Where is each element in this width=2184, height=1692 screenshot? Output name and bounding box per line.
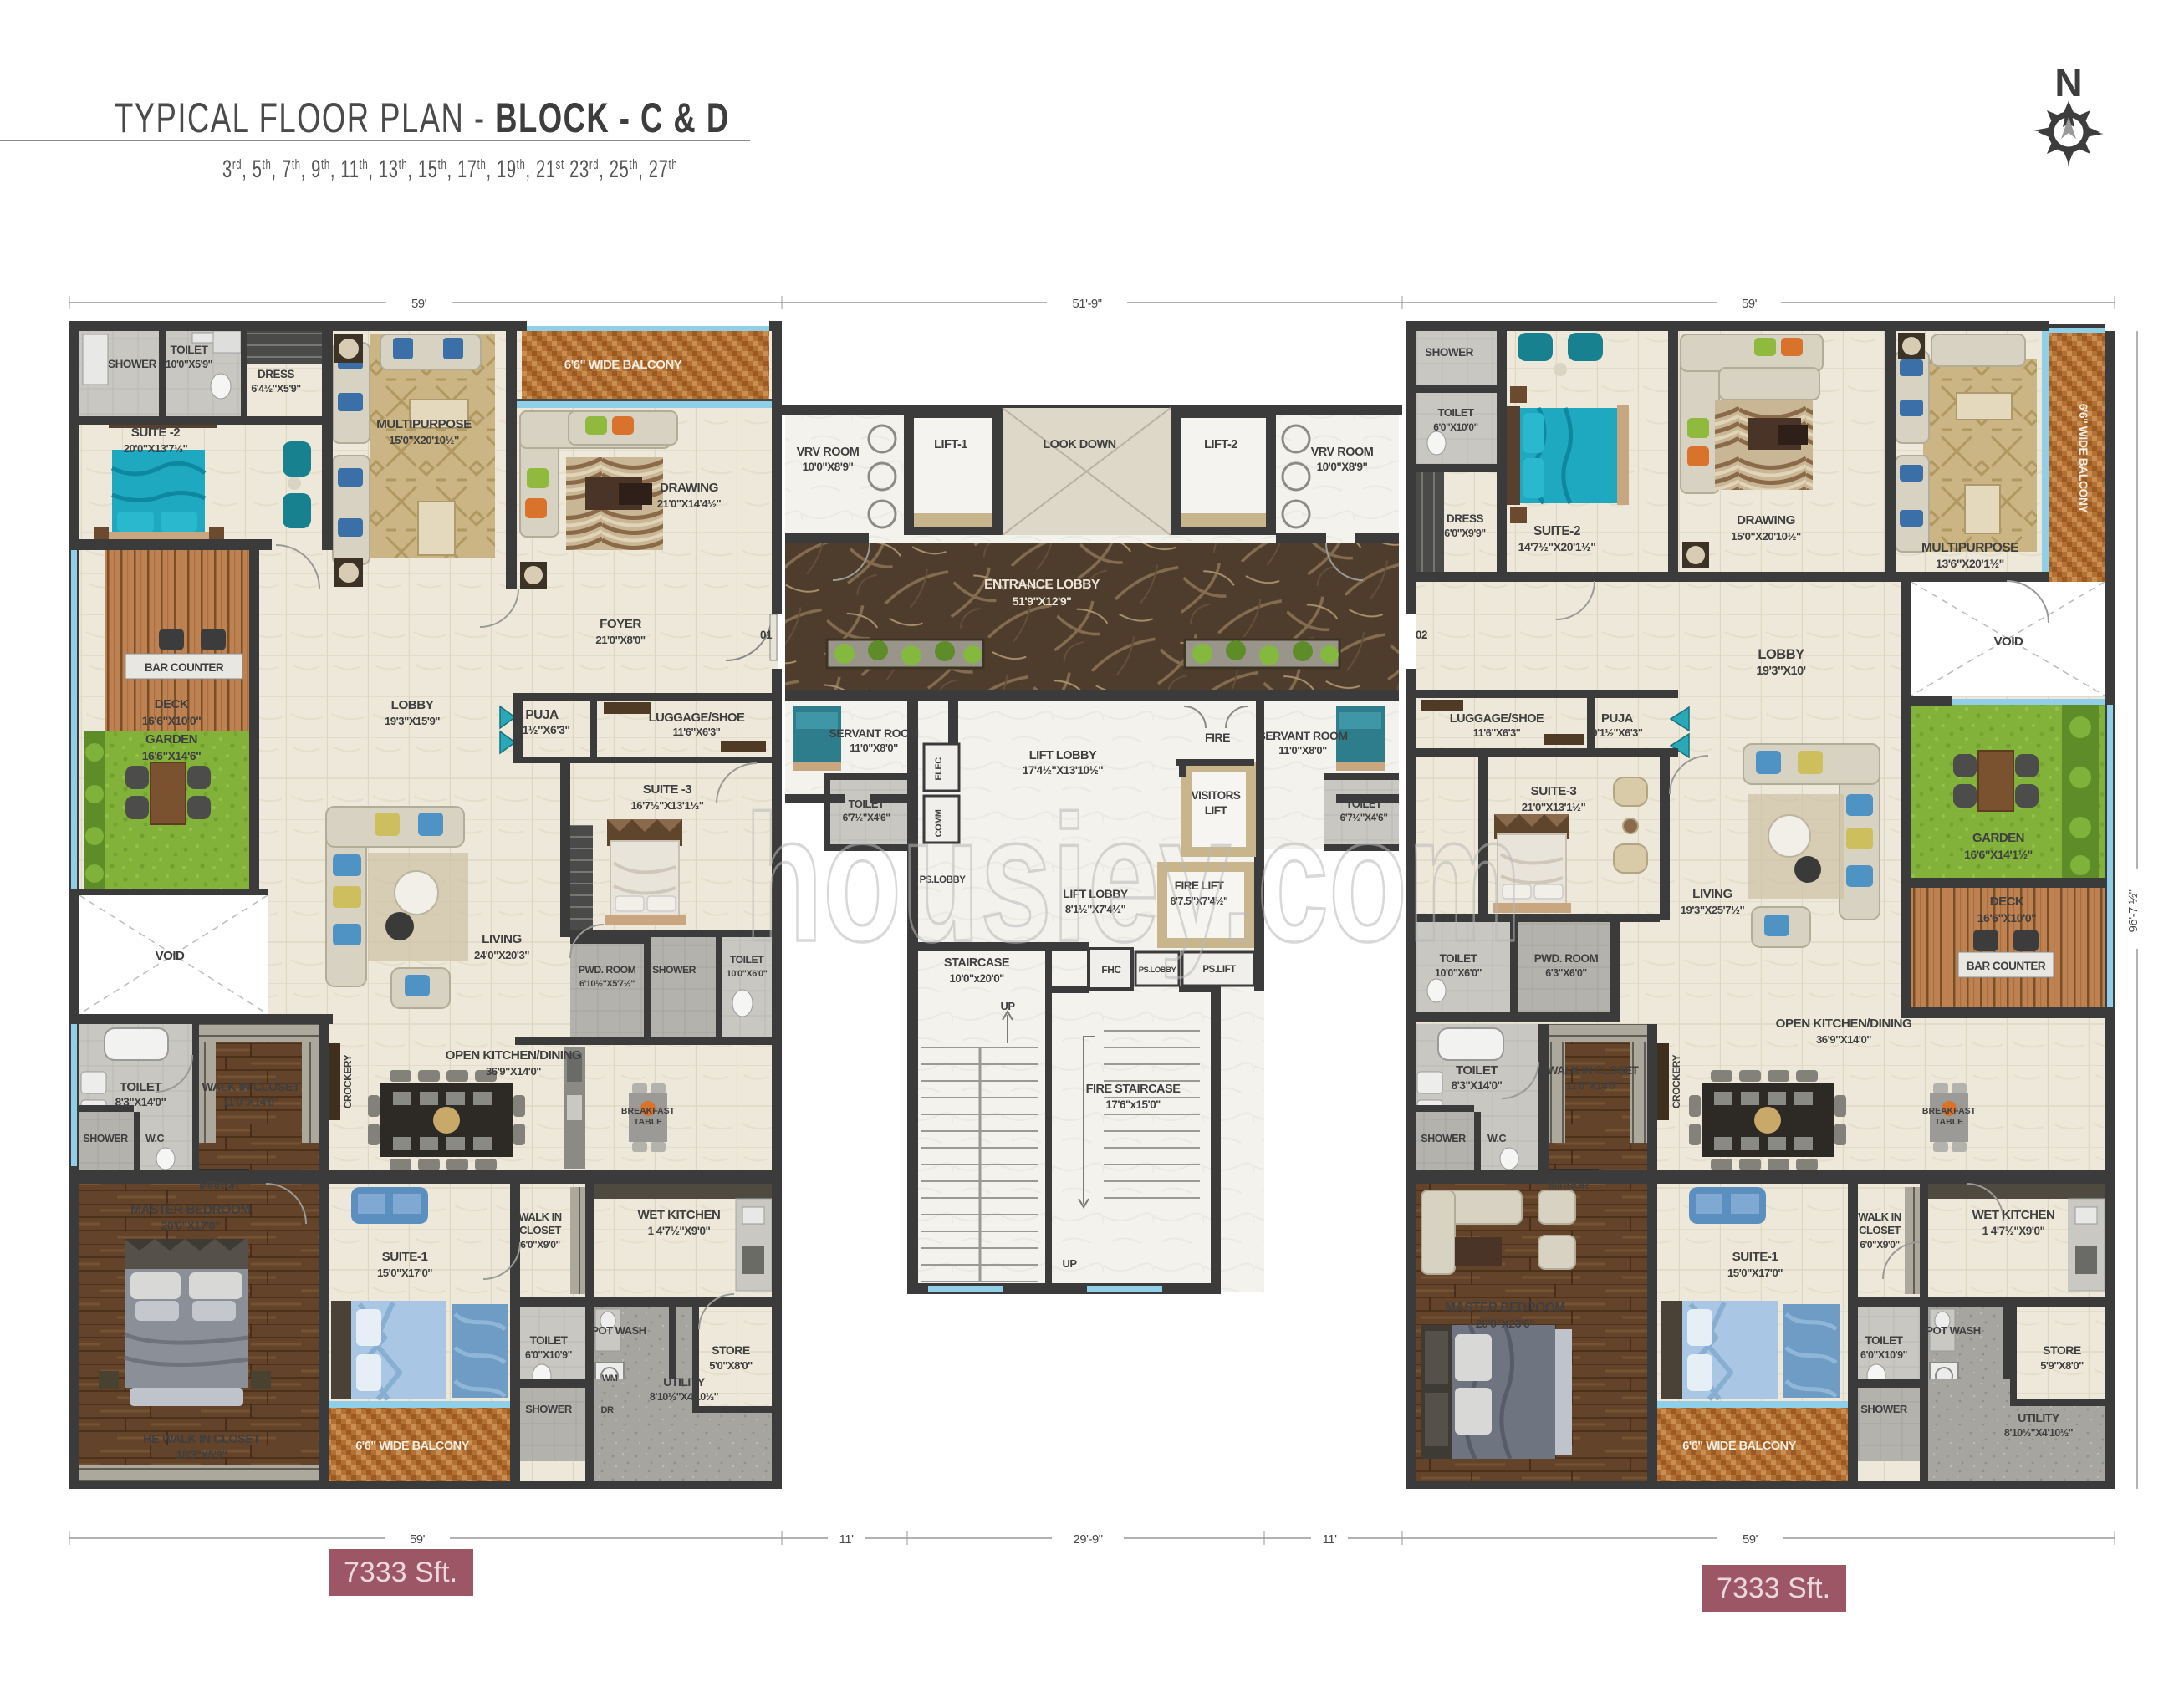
svg-text:6'0"X10'9": 6'0"X10'9" <box>1860 1349 1907 1361</box>
svg-text:11'6"X6'3": 11'6"X6'3" <box>1473 726 1521 739</box>
svg-text:13'6"X20'1½": 13'6"X20'1½" <box>1936 557 2004 570</box>
svg-text:CROCKERY: CROCKERY <box>1671 1054 1682 1108</box>
svg-text:TABLE: TABLE <box>1935 1117 1963 1127</box>
svg-text:TOILET: TOILET <box>1865 1334 1904 1347</box>
svg-text:BREAKFAST: BREAKFAST <box>1922 1106 1977 1116</box>
svg-text:15'0"X20'10½": 15'0"X20'10½" <box>389 434 459 446</box>
svg-text:02: 02 <box>1416 629 1427 641</box>
svg-text:W.C: W.C <box>1487 1133 1507 1144</box>
svg-text:SUITE-2: SUITE-2 <box>1533 524 1580 538</box>
svg-text:CLOSET: CLOSET <box>519 1224 561 1236</box>
svg-text:6'6" WIDE BALCONY: 6'6" WIDE BALCONY <box>1682 1440 1796 1453</box>
svg-text:LOBBY: LOBBY <box>1758 647 1804 662</box>
svg-text:LIFT LOBBY: LIFT LOBBY <box>1029 749 1097 762</box>
svg-text:DRESS: DRESS <box>258 368 295 380</box>
svg-text:ENTRANCE LOBBY: ENTRANCE LOBBY <box>984 578 1100 592</box>
svg-text:21'0"X13'1½": 21'0"X13'1½" <box>1522 801 1586 813</box>
svg-text:8'3"X14'0": 8'3"X14'0" <box>115 1096 166 1108</box>
svg-text:11'0"X8'0": 11'0"X8'0" <box>850 742 898 754</box>
svg-text:SHOWER: SHOWER <box>1421 1133 1466 1144</box>
svg-text:UP: UP <box>1062 1257 1077 1270</box>
svg-text:LUGGAGE/SHOE: LUGGAGE/SHOE <box>649 711 745 725</box>
svg-text:11'0"X8'0": 11'0"X8'0" <box>1278 744 1327 757</box>
svg-text:WALK IN: WALK IN <box>518 1210 561 1223</box>
svg-text:11': 11' <box>839 1532 855 1547</box>
svg-text:9'1½"X6'3": 9'1½"X6'3" <box>513 723 569 736</box>
svg-text:59': 59' <box>1742 297 1758 311</box>
svg-text:DECK: DECK <box>1990 894 2024 909</box>
svg-text:OPEN KITCHEN/DINING: OPEN KITCHEN/DINING <box>1776 1017 1912 1031</box>
svg-text:WET KITCHEN: WET KITCHEN <box>638 1208 721 1222</box>
svg-text:LUGGAGE/SHOE: LUGGAGE/SHOE <box>1450 712 1544 726</box>
svg-text:11'0"X14'0": 11'0"X14'0" <box>1566 1079 1620 1092</box>
svg-text:59': 59' <box>411 297 427 311</box>
svg-text:6'3"X6'0": 6'3"X6'0" <box>1545 967 1587 979</box>
svg-text:MIRROR: MIRROR <box>1549 1180 1589 1191</box>
svg-text:51'-9": 51'-9" <box>1072 297 1101 311</box>
svg-text:DRAWING: DRAWING <box>1737 513 1795 527</box>
svg-text:20'0"X13'7½": 20'0"X13'7½" <box>124 442 188 455</box>
svg-text:6'0"X10'9": 6'0"X10'9" <box>525 1349 572 1361</box>
svg-text:BREAKFAST: BREAKFAST <box>621 1106 676 1116</box>
svg-text:WM: WM <box>602 1373 618 1384</box>
svg-text:MULTIPURPOSE: MULTIPURPOSE <box>1921 541 2018 555</box>
svg-text:PUJA: PUJA <box>1601 711 1634 726</box>
svg-text:LOBBY: LOBBY <box>391 698 434 712</box>
svg-text:STORE: STORE <box>712 1343 750 1357</box>
svg-text:GARDEN: GARDEN <box>1972 831 2024 845</box>
svg-text:18'3"X5'9": 18'3"X5'9" <box>176 1449 227 1461</box>
svg-text:CLOSET: CLOSET <box>1859 1224 1901 1236</box>
svg-text:SHOWER: SHOWER <box>1425 346 1474 359</box>
svg-text:TOILET: TOILET <box>120 1080 161 1094</box>
svg-text:5'0"X8'0": 5'0"X8'0" <box>709 1359 753 1372</box>
svg-text:LIVING: LIVING <box>1692 887 1732 901</box>
svg-text:LOOK DOWN: LOOK DOWN <box>1043 438 1115 451</box>
svg-text:FIRE STAIRCASE: FIRE STAIRCASE <box>1086 1083 1181 1096</box>
svg-text:WET KITCHEN: WET KITCHEN <box>1972 1208 2055 1222</box>
svg-text:POT WASH: POT WASH <box>1926 1324 1980 1337</box>
svg-text:TOILET: TOILET <box>1438 406 1475 419</box>
svg-text:15'0"X17'0": 15'0"X17'0" <box>377 1266 432 1279</box>
svg-text:TOILET: TOILET <box>1456 1063 1498 1078</box>
svg-text:DRAWING: DRAWING <box>660 481 718 495</box>
svg-text:PWD. ROOM: PWD. ROOM <box>1534 952 1599 965</box>
svg-text:6'0"X9'0": 6'0"X9'0" <box>520 1239 559 1251</box>
svg-text:SUITE -2: SUITE -2 <box>131 426 181 440</box>
svg-text:GARDEN: GARDEN <box>145 732 197 747</box>
svg-text:5'9"X8'0": 5'9"X8'0" <box>2040 1359 2084 1372</box>
svg-text:TYPICAL FLOOR PLAN - BLOCK - C: TYPICAL FLOOR PLAN - BLOCK - C & D <box>115 94 730 141</box>
svg-text:6'6" WIDE BALCONY: 6'6" WIDE BALCONY <box>2077 404 2090 514</box>
svg-text:16'6"X10'0": 16'6"X10'0" <box>142 714 202 727</box>
svg-text:15'0"X20'10½": 15'0"X20'10½" <box>1731 530 1801 543</box>
svg-text:housiey.com: housiey.com <box>744 777 1522 979</box>
svg-text:10'0"X8'9": 10'0"X8'9" <box>803 461 854 473</box>
svg-text:8'10½"X4'10½": 8'10½"X4'10½" <box>2004 1427 2074 1439</box>
svg-text:59': 59' <box>410 1532 426 1547</box>
svg-text:N: N <box>2054 61 2082 104</box>
svg-text:20'0"X17'0": 20'0"X17'0" <box>161 1219 221 1232</box>
svg-text:SHOWER: SHOWER <box>652 964 697 976</box>
svg-text:14'7½"X20'1½": 14'7½"X20'1½" <box>1518 540 1596 553</box>
svg-text:6'4½"X5'9": 6'4½"X5'9" <box>251 383 301 395</box>
svg-text:SHOWER: SHOWER <box>83 1133 128 1144</box>
svg-text:FIRE: FIRE <box>1205 731 1230 744</box>
svg-text:WALK IN CLOSET: WALK IN CLOSET <box>1548 1064 1640 1077</box>
svg-text:16'6"X10'0": 16'6"X10'0" <box>1977 911 2037 925</box>
svg-text:6'6" WIDE BALCONY: 6'6" WIDE BALCONY <box>564 358 682 372</box>
svg-text:6'6" WIDE BALCONY: 6'6" WIDE BALCONY <box>355 1440 469 1453</box>
svg-text:11': 11' <box>1323 1532 1338 1547</box>
svg-text:SUITE-1: SUITE-1 <box>382 1250 429 1264</box>
svg-text:8'10½"X4'10½": 8'10½"X4'10½" <box>650 1391 719 1403</box>
svg-text:96'-7 ½": 96'-7 ½" <box>2126 889 2141 932</box>
svg-text:POT WASH: POT WASH <box>591 1324 646 1337</box>
svg-text:BAR COUNTER: BAR COUNTER <box>145 661 224 674</box>
svg-text:SHOWER: SHOWER <box>1860 1403 1908 1415</box>
svg-text:6'0"X9'9": 6'0"X9'9" <box>1444 527 1486 539</box>
svg-text:MIRROR: MIRROR <box>199 1180 239 1191</box>
svg-text:1 4'7½"X9'0": 1 4'7½"X9'0" <box>648 1225 711 1237</box>
svg-text:21'0"X14'4½": 21'0"X14'4½" <box>657 497 722 510</box>
svg-text:19'3"X25'7½": 19'3"X25'7½" <box>1681 904 1745 916</box>
svg-text:8'3"X14'0": 8'3"X14'0" <box>1452 1079 1503 1092</box>
svg-text:1 4'7½"X9'0": 1 4'7½"X9'0" <box>1982 1225 2045 1237</box>
svg-text:29'-9": 29'-9" <box>1073 1532 1102 1547</box>
svg-text:DECK: DECK <box>155 697 189 711</box>
svg-text:15'0"X17'0": 15'0"X17'0" <box>1727 1266 1783 1279</box>
svg-text:6'10½"X5'7½": 6'10½"X5'7½" <box>579 979 635 989</box>
svg-text:PUJA: PUJA <box>525 708 559 722</box>
svg-text:BAR COUNTER: BAR COUNTER <box>1967 960 2046 972</box>
svg-text:SERVANT ROOM: SERVANT ROOM <box>829 726 918 740</box>
svg-text:11'0"X14'0": 11'0"X14'0" <box>222 1096 278 1108</box>
svg-text:24'0"X20'3": 24'0"X20'3" <box>474 949 529 961</box>
svg-text:VRV ROOM: VRV ROOM <box>797 446 860 459</box>
svg-text:TABLE: TABLE <box>634 1117 662 1127</box>
svg-text:19'3"X15'9": 19'3"X15'9" <box>385 715 440 727</box>
svg-text:STORE: STORE <box>2043 1343 2081 1357</box>
svg-text:DRESS: DRESS <box>1447 512 1484 525</box>
svg-text:59': 59' <box>1743 1532 1758 1547</box>
svg-text:6'0"X10'0": 6'0"X10'0" <box>1433 421 1477 433</box>
svg-text:10'0"X8'9": 10'0"X8'9" <box>1317 461 1368 473</box>
svg-text:16'7½"X13'1½": 16'7½"X13'1½" <box>630 799 703 812</box>
svg-text:UP: UP <box>1000 1000 1015 1012</box>
svg-text:17'6''x15'0'': 17'6''x15'0'' <box>1105 1098 1161 1111</box>
svg-text:10'0"X5'9": 10'0"X5'9" <box>166 359 212 370</box>
svg-text:UTILITY: UTILITY <box>663 1375 706 1389</box>
svg-text:WALK IN CLOSET: WALK IN CLOSET <box>202 1081 300 1094</box>
svg-text:9'1½"X6'3": 9'1½"X6'3" <box>1592 726 1643 739</box>
svg-text:51'9"X12'9": 51'9"X12'9" <box>1013 594 1072 608</box>
svg-text:6'0"X9'0": 6'0"X9'0" <box>1860 1239 1899 1251</box>
svg-text:LIVING: LIVING <box>482 932 522 946</box>
svg-text:MULTIPURPOSE: MULTIPURPOSE <box>376 417 472 431</box>
svg-text:FOYER: FOYER <box>600 617 641 631</box>
svg-text:17'4½"X13'10½": 17'4½"X13'10½" <box>1023 764 1103 777</box>
svg-text:3rd, 5th, 7th, 9th, 11th, 13th: 3rd, 5th, 7th, 9th, 11th, 13th, 15th, 17… <box>222 155 677 183</box>
svg-text:HE WALK IN CLOSET: HE WALK IN CLOSET <box>143 1433 260 1446</box>
svg-text:TOILET: TOILET <box>530 1334 569 1347</box>
svg-text:36'9"X14'0": 36'9"X14'0" <box>486 1065 541 1078</box>
svg-text:SHOWER: SHOWER <box>108 358 157 370</box>
svg-text:LIFT-1: LIFT-1 <box>934 438 967 451</box>
svg-text:01: 01 <box>760 629 773 641</box>
svg-text:11'6"X6'3": 11'6"X6'3" <box>673 726 721 738</box>
svg-text:21'0"X8'0": 21'0"X8'0" <box>595 634 645 646</box>
svg-text:TOILET: TOILET <box>171 344 209 356</box>
svg-text:16'6"X14'1½": 16'6"X14'1½" <box>1964 848 2033 861</box>
svg-text:16'6"X14'6": 16'6"X14'6" <box>142 749 202 762</box>
svg-text:SUITE-3: SUITE-3 <box>1531 784 1577 798</box>
svg-text:W.C: W.C <box>145 1133 165 1144</box>
svg-text:SERVANT ROOM: SERVANT ROOM <box>1258 729 1347 742</box>
svg-text:SHOWER: SHOWER <box>525 1403 573 1415</box>
svg-text:DR: DR <box>601 1405 614 1415</box>
svg-text:20'0"X23'6": 20'0"X23'6" <box>1476 1317 1535 1330</box>
svg-text:MASTER BEDROOM: MASTER BEDROOM <box>130 1203 251 1217</box>
svg-text:OPEN KITCHEN/DINING: OPEN KITCHEN/DINING <box>446 1048 582 1063</box>
svg-text:VOID: VOID <box>156 949 185 963</box>
svg-text:UTILITY: UTILITY <box>2018 1411 2060 1424</box>
svg-text:VOID: VOID <box>1994 634 2023 649</box>
svg-text:7333 Sft.: 7333 Sft. <box>344 1557 457 1588</box>
svg-text:LIFT-2: LIFT-2 <box>1204 438 1237 451</box>
svg-text:36'9"X14'0": 36'9"X14'0" <box>1816 1033 1871 1046</box>
svg-text:19'3"X10': 19'3"X10' <box>1756 665 1805 678</box>
svg-text:VRV ROOM: VRV ROOM <box>1311 446 1374 459</box>
svg-text:MASTER BEDROOM: MASTER BEDROOM <box>1445 1301 1565 1315</box>
svg-text:PWD. ROOM: PWD. ROOM <box>579 964 636 976</box>
svg-text:CROCKERY: CROCKERY <box>342 1054 354 1108</box>
svg-text:WALK IN: WALK IN <box>1858 1210 1901 1223</box>
svg-text:7333 Sft.: 7333 Sft. <box>1717 1572 1830 1604</box>
svg-text:SUITE -3: SUITE -3 <box>643 782 692 797</box>
svg-text:SUITE-1: SUITE-1 <box>1732 1250 1779 1264</box>
